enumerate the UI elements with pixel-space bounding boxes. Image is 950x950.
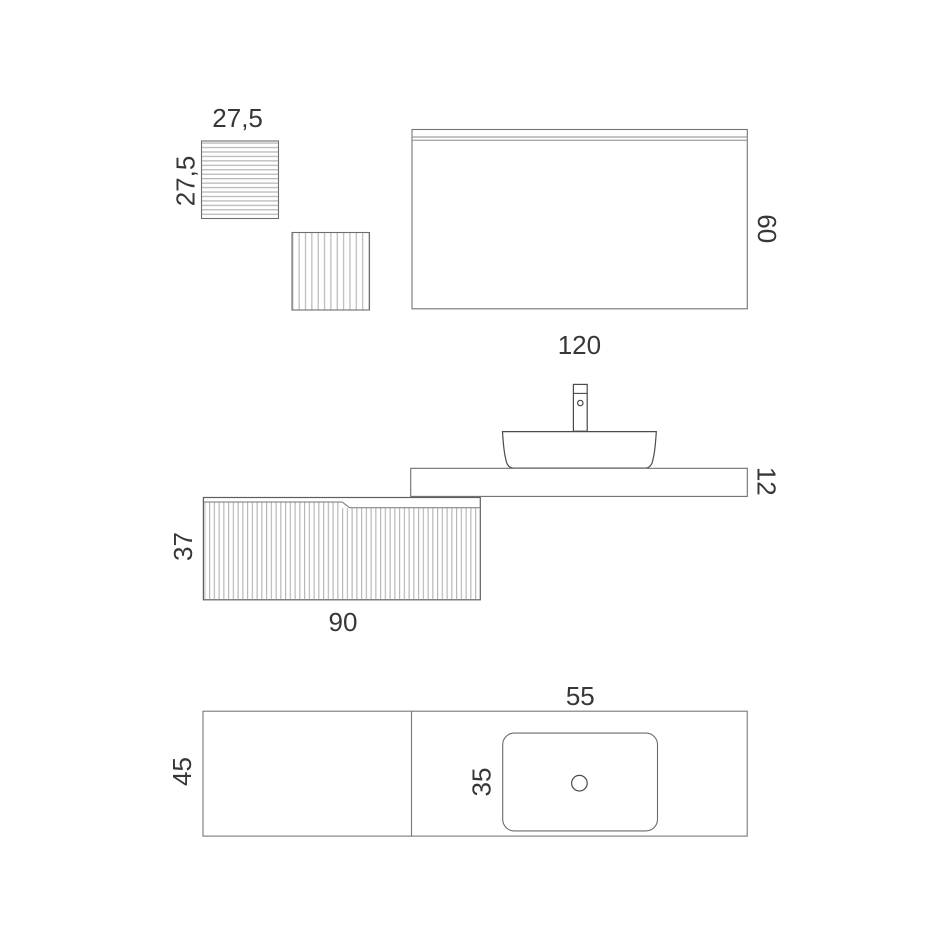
svg-text:55: 55 [566,681,595,711]
svg-text:35: 35 [467,768,497,797]
svg-text:60: 60 [752,214,782,243]
svg-text:27,5: 27,5 [170,156,200,207]
svg-text:37: 37 [168,532,198,561]
svg-text:27,5: 27,5 [212,103,263,133]
svg-text:45: 45 [167,757,197,786]
svg-text:12: 12 [751,467,781,496]
svg-text:120: 120 [558,330,601,360]
svg-text:90: 90 [329,607,358,637]
